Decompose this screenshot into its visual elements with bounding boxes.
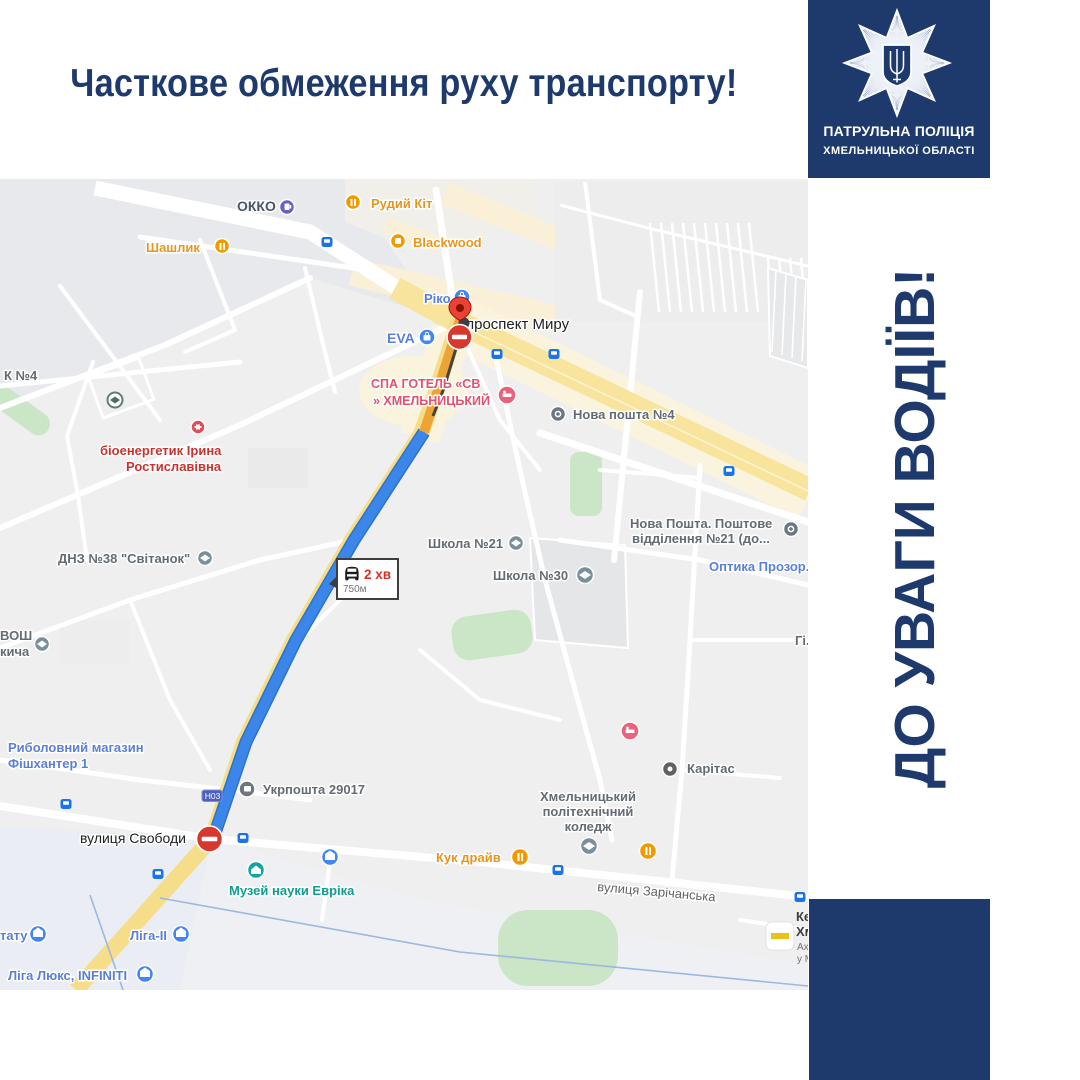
svg-text:відділення №21 (до...: відділення №21 (до... <box>632 531 770 546</box>
svg-text:2 хв: 2 хв <box>364 567 391 582</box>
svg-text:Ліга Люкс, INFINITI: Ліга Люкс, INFINITI <box>8 968 127 983</box>
svg-text:біоенергетик Ірина: біоенергетик Ірина <box>100 443 222 458</box>
svg-text:ВОШ: ВОШ <box>0 628 32 643</box>
svg-text:Риболовний магазин: Риболовний магазин <box>8 740 144 755</box>
svg-text:Ах: Ах <box>797 942 808 953</box>
svg-text:СПА ГОТЕЛЬ «СВ: СПА ГОТЕЛЬ «СВ <box>371 377 480 391</box>
svg-text:К №4: К №4 <box>4 368 38 383</box>
svg-text:Нова пошта №4: Нова пошта №4 <box>573 407 675 422</box>
svg-text:проспект Миру: проспект Миру <box>466 316 570 333</box>
svg-text:вулиця Свободи: вулиця Свободи <box>80 830 186 846</box>
svg-text:Н03: Н03 <box>205 791 221 801</box>
svg-text:Рудий Кіт: Рудий Кіт <box>371 196 432 211</box>
svg-text:Музей науки Евріка: Музей науки Евріка <box>229 883 355 898</box>
svg-text:Школа №21: Школа №21 <box>428 536 503 551</box>
svg-text:Карітас: Карітас <box>687 761 735 776</box>
svg-text:EVA: EVA <box>387 330 415 346</box>
svg-text:Школа №30: Школа №30 <box>493 568 568 583</box>
svg-text:Ріко: Ріко <box>424 291 451 306</box>
svg-text:ДНЗ №38 "Світанок": ДНЗ №38 "Світанок" <box>58 551 190 566</box>
svg-text:Кук драйв: Кук драйв <box>436 850 501 865</box>
svg-text:Blackwood: Blackwood <box>413 235 482 250</box>
svg-text:коледж: коледж <box>565 819 613 834</box>
svg-text:Ліга-ІІ: Ліга-ІІ <box>130 928 167 943</box>
svg-text:Хм: Хм <box>796 924 808 939</box>
svg-text:Фішхантер 1: Фішхантер 1 <box>8 756 88 771</box>
svg-text:Ростиславівна: Ростиславівна <box>126 459 222 474</box>
svg-text:Укрпошта 29017: Укрпошта 29017 <box>263 782 365 797</box>
svg-text:Гі...: Гі... <box>795 633 808 648</box>
svg-text:у М: у М <box>797 954 808 965</box>
svg-text:Шашлик: Шашлик <box>146 240 200 255</box>
svg-text:Ке: Ке <box>796 909 808 924</box>
svg-text:тату: тату <box>0 928 28 943</box>
svg-text:750м: 750м <box>343 584 367 595</box>
svg-text:політехнічний: політехнічний <box>543 804 634 819</box>
svg-text:ОККО: ОККО <box>237 198 276 214</box>
svg-text:Нова Пошта. Поштове: Нова Пошта. Поштове <box>630 516 772 531</box>
svg-text:Хмельницький: Хмельницький <box>540 789 636 804</box>
svg-text:кича: кича <box>0 644 30 659</box>
svg-text:» ХМЕЛЬНИЦЬКИЙ: » ХМЕЛЬНИЦЬКИЙ <box>373 393 490 408</box>
svg-text:Оптика Прозор...: Оптика Прозор... <box>709 559 808 574</box>
